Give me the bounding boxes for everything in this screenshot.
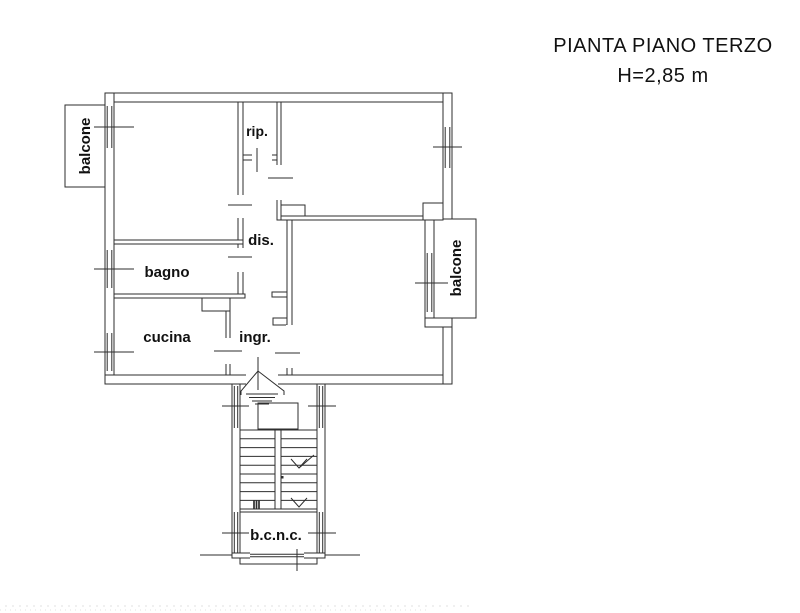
label-bcnc: b.c.n.c.: [250, 527, 302, 544]
label-balcone-left: balcone: [77, 118, 94, 175]
stair-section-hatch: [254, 500, 259, 509]
paper-background: [0, 0, 800, 613]
label-ingr: ingr.: [239, 329, 271, 346]
label-bagno: bagno: [145, 264, 190, 281]
label-rip: rip.: [246, 123, 268, 139]
label-dis: dis.: [248, 232, 274, 249]
plan-title: PIANTA PIANO TERZO: [553, 35, 772, 57]
label-balcone-right: balcone: [448, 240, 465, 297]
plan-height-note: H=2,85 m: [617, 65, 708, 87]
floorplan-canvas: rip. dis. bagno cucina ingr. b.c.n.c. ba…: [0, 0, 800, 613]
floor-plan-page: rip. dis. bagno cucina ingr. b.c.n.c. ba…: [0, 0, 800, 613]
label-cucina: cucina: [143, 329, 191, 346]
